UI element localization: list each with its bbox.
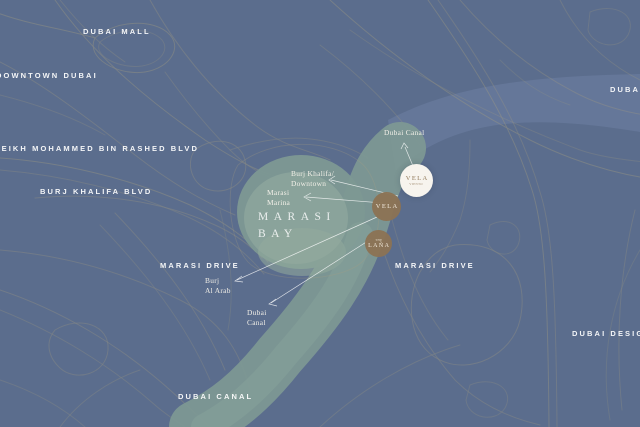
callout-line: Dubai bbox=[247, 308, 267, 318]
label-dubai-mall: DUBAI MALL bbox=[83, 27, 151, 36]
marker-vela[interactable]: VELA bbox=[372, 192, 401, 221]
callout-line: Burj Khalifa/ bbox=[291, 169, 334, 179]
marker-pre: THE bbox=[375, 238, 382, 241]
label-sheikh-mohammed-bin-rashed-blvd: SHEIKH MOHAMMED BIN RASHED BLVD bbox=[0, 144, 199, 153]
marker-title: VELA bbox=[404, 175, 428, 182]
label-dubai-canal-bottom: DUBAI CANAL bbox=[178, 392, 253, 401]
label-marasi-bay-line1: MARASI bbox=[258, 211, 336, 223]
callout-marasi-marina: Marasi Marina bbox=[267, 188, 290, 207]
callout-line: Burj bbox=[205, 276, 231, 286]
label-burj-khalifa-blvd: BURJ KHALIFA BLVD bbox=[40, 187, 152, 196]
callout-dubai-canal-top: Dubai Canal bbox=[384, 128, 424, 138]
callout-dubai-canal-small: Dubai Canal bbox=[247, 308, 267, 327]
marasi-bay-location-map: DUBAI MALL DOWNTOWN DUBAI SHEIKH MOHAMME… bbox=[0, 0, 640, 427]
label-marasi-bay-line2: BAY bbox=[258, 228, 298, 240]
callout-line: Canal bbox=[247, 318, 267, 328]
label-dubai-design: DUBAI DESIGN bbox=[572, 329, 640, 338]
marker-subtitle: VIENTO bbox=[410, 182, 424, 185]
label-marasi-drive-west: MARASI DRIVE bbox=[160, 261, 240, 270]
callout-line: Marina bbox=[267, 198, 290, 208]
callout-burj-khalifa-downtown: Burj Khalifa/ Downtown bbox=[291, 169, 334, 188]
callout-line: Marasi bbox=[267, 188, 290, 198]
callout-line: Downtown bbox=[291, 179, 334, 189]
marker-title: LAÑA bbox=[367, 243, 391, 250]
marker-the-lana[interactable]: THE LAÑA bbox=[365, 230, 392, 257]
callout-burj-al-arab: Burj Al Arab bbox=[205, 276, 231, 295]
label-marasi-drive-east: MARASI DRIVE bbox=[395, 261, 475, 270]
label-dubai-right: DUBAI bbox=[610, 85, 640, 94]
marker-title: VELA bbox=[374, 203, 398, 210]
label-downtown-dubai: DOWNTOWN DUBAI bbox=[0, 71, 98, 80]
marker-vela-viento[interactable]: VELA VIENTO bbox=[400, 164, 433, 197]
callout-line: Al Arab bbox=[205, 286, 231, 296]
